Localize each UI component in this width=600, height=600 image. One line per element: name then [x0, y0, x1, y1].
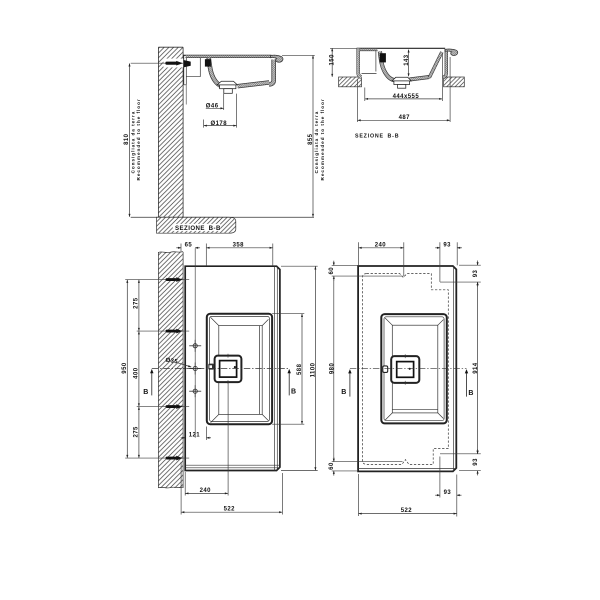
svg-text:93: 93	[473, 458, 479, 466]
svg-text:60: 60	[329, 462, 335, 470]
svg-text:SEZIONE B-B: SEZIONE B-B	[175, 225, 221, 232]
svg-text:980: 980	[329, 363, 335, 375]
svg-text:1100: 1100	[310, 362, 316, 377]
svg-text:522: 522	[224, 507, 236, 513]
svg-text:Ø178: Ø178	[211, 121, 228, 127]
svg-text:400: 400	[134, 367, 140, 379]
svg-text:Ø46: Ø46	[206, 104, 219, 110]
svg-text:93: 93	[443, 243, 451, 249]
svg-text:914: 914	[473, 362, 479, 374]
svg-text:522: 522	[401, 508, 413, 514]
svg-text:275: 275	[134, 426, 140, 438]
svg-text:Recommended to the floor: Recommended to the floor	[320, 98, 325, 180]
svg-text:93: 93	[444, 490, 452, 496]
svg-text:B: B	[468, 390, 473, 397]
svg-text:121: 121	[189, 432, 201, 438]
svg-text:Recommended to the floor: Recommended to the floor	[136, 98, 141, 180]
svg-text:65: 65	[185, 243, 193, 249]
svg-text:143: 143	[404, 54, 410, 66]
svg-text:150: 150	[330, 54, 336, 66]
svg-text:444x555: 444x555	[393, 94, 420, 100]
svg-text:275: 275	[134, 297, 140, 309]
svg-text:B: B	[341, 389, 346, 396]
svg-text:B: B	[143, 389, 148, 396]
svg-text:93: 93	[473, 270, 479, 278]
svg-text:Consigliata da terra: Consigliata da terra	[314, 111, 319, 174]
svg-text:588: 588	[297, 363, 303, 375]
svg-text:855: 855	[308, 133, 314, 145]
svg-text:487: 487	[399, 115, 411, 121]
svg-text:810: 810	[124, 133, 130, 145]
svg-text:358: 358	[233, 243, 245, 249]
svg-text:240: 240	[375, 243, 387, 249]
svg-text:60: 60	[329, 267, 335, 275]
svg-text:950: 950	[122, 362, 128, 374]
svg-text:B: B	[291, 389, 296, 396]
svg-text:240: 240	[200, 488, 212, 494]
svg-text:SEZIONE B-B: SEZIONE B-B	[355, 134, 399, 140]
svg-text:Consigliata da terra: Consigliata da terra	[131, 111, 136, 174]
